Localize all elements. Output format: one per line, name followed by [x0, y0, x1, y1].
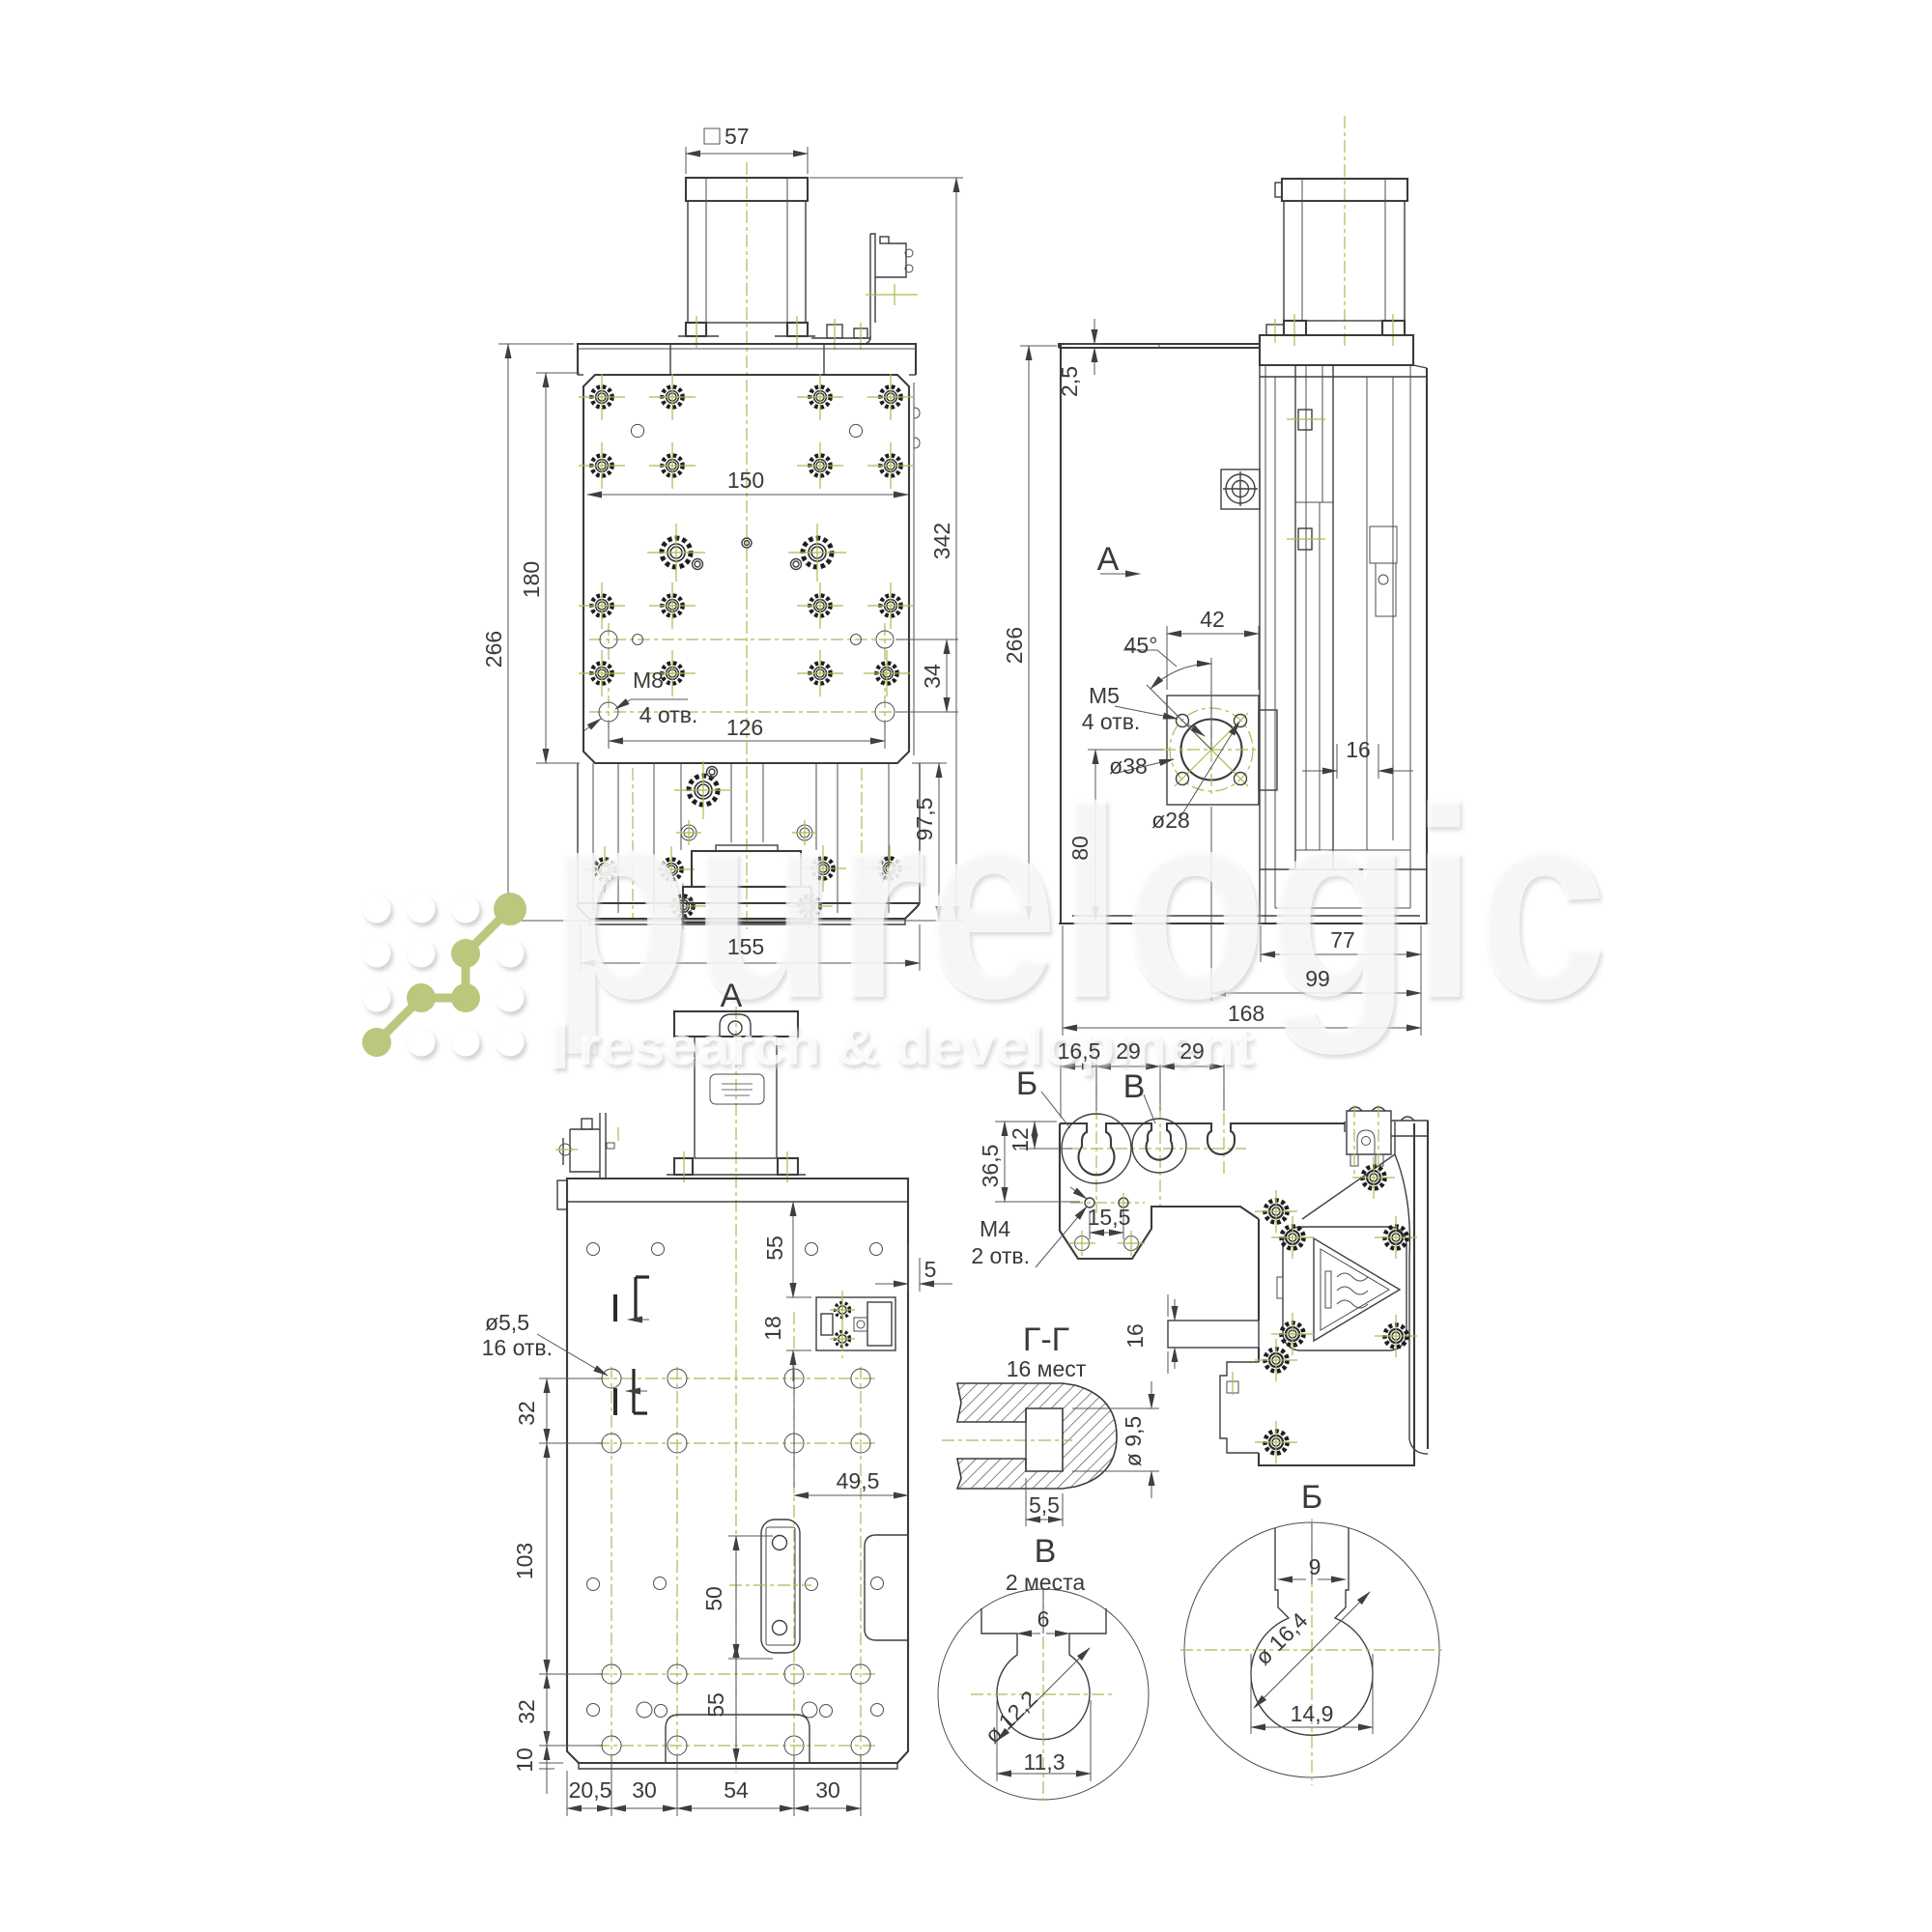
svg-text:В: В — [1123, 1068, 1146, 1105]
svg-text:32: 32 — [514, 1699, 539, 1724]
svg-text:80: 80 — [1067, 836, 1093, 861]
svg-text:В: В — [1035, 1533, 1057, 1570]
svg-text:266: 266 — [1002, 627, 1027, 664]
svg-text:126: 126 — [726, 715, 763, 740]
svg-text:16,5: 16,5 — [1058, 1038, 1101, 1064]
svg-text:266: 266 — [481, 631, 506, 668]
svg-text:ø 16,4: ø 16,4 — [1250, 1607, 1313, 1670]
svg-text:30: 30 — [815, 1777, 840, 1803]
svg-text:29: 29 — [1179, 1038, 1205, 1064]
svg-text:16: 16 — [1122, 1323, 1148, 1349]
svg-text:97,5: 97,5 — [912, 798, 937, 841]
svg-text:ø5,5: ø5,5 — [485, 1310, 529, 1335]
svg-text:34: 34 — [920, 664, 945, 689]
svg-text:77: 77 — [1330, 927, 1355, 952]
svg-text:15,5: 15,5 — [1088, 1205, 1131, 1230]
svg-text:2 отв.: 2 отв. — [971, 1243, 1030, 1268]
svg-text:180: 180 — [519, 561, 544, 598]
svg-text:168: 168 — [1228, 1001, 1264, 1026]
svg-text:29: 29 — [1116, 1038, 1141, 1064]
svg-text:50: 50 — [701, 1586, 726, 1611]
svg-text:155: 155 — [727, 934, 764, 959]
svg-text:42: 42 — [1200, 607, 1225, 632]
svg-text:А: А — [721, 978, 743, 1014]
svg-text:20,5: 20,5 — [569, 1777, 612, 1803]
svg-text:М4: М4 — [980, 1216, 1010, 1241]
svg-text:14,9: 14,9 — [1291, 1701, 1334, 1726]
svg-text:М8: М8 — [633, 668, 664, 693]
svg-text:М5: М5 — [1089, 683, 1120, 708]
svg-text:32: 32 — [514, 1401, 539, 1426]
svg-text:45°: 45° — [1124, 633, 1158, 658]
svg-text:36,5: 36,5 — [978, 1145, 1003, 1188]
svg-text:99: 99 — [1305, 966, 1330, 991]
svg-text:342: 342 — [929, 523, 954, 559]
svg-text:Г-Г: Г-Г — [1023, 1321, 1069, 1358]
svg-text:16 отв.: 16 отв. — [482, 1335, 553, 1360]
svg-text:103: 103 — [512, 1543, 537, 1579]
svg-text:30: 30 — [632, 1777, 657, 1803]
svg-text:54: 54 — [724, 1777, 749, 1803]
svg-text:16 мест: 16 мест — [1007, 1356, 1087, 1381]
svg-text:55: 55 — [762, 1236, 787, 1261]
svg-text:55: 55 — [703, 1692, 728, 1718]
svg-text:12: 12 — [1008, 1127, 1033, 1152]
svg-text:2,5: 2,5 — [1057, 366, 1082, 397]
svg-text:57: 57 — [724, 124, 750, 149]
svg-text:Б: Б — [1301, 1479, 1322, 1516]
svg-text:research & development: research & development — [578, 1015, 1254, 1076]
svg-text:Б: Б — [1016, 1065, 1037, 1102]
svg-text:А: А — [1097, 541, 1120, 578]
svg-text:purelogic: purelogic — [547, 751, 1607, 1057]
svg-text:16: 16 — [1346, 737, 1371, 762]
svg-text:4 отв.: 4 отв. — [639, 702, 698, 727]
svg-text:ø 9,5: ø 9,5 — [1121, 1416, 1146, 1466]
svg-text:6: 6 — [1037, 1606, 1050, 1632]
svg-text:5,5: 5,5 — [1029, 1492, 1060, 1518]
svg-text:9: 9 — [1309, 1554, 1321, 1579]
svg-text:4 отв.: 4 отв. — [1082, 709, 1141, 734]
svg-text:49,5: 49,5 — [837, 1468, 880, 1493]
svg-text:11,3: 11,3 — [1023, 1749, 1065, 1775]
svg-text:ø38: ø38 — [1109, 753, 1148, 779]
svg-text:150: 150 — [727, 468, 764, 493]
svg-text:5: 5 — [924, 1257, 937, 1282]
svg-text:18: 18 — [760, 1316, 785, 1341]
svg-text:10: 10 — [512, 1747, 537, 1773]
svg-text:2 места: 2 места — [1006, 1570, 1086, 1595]
svg-text:ø28: ø28 — [1151, 808, 1190, 833]
